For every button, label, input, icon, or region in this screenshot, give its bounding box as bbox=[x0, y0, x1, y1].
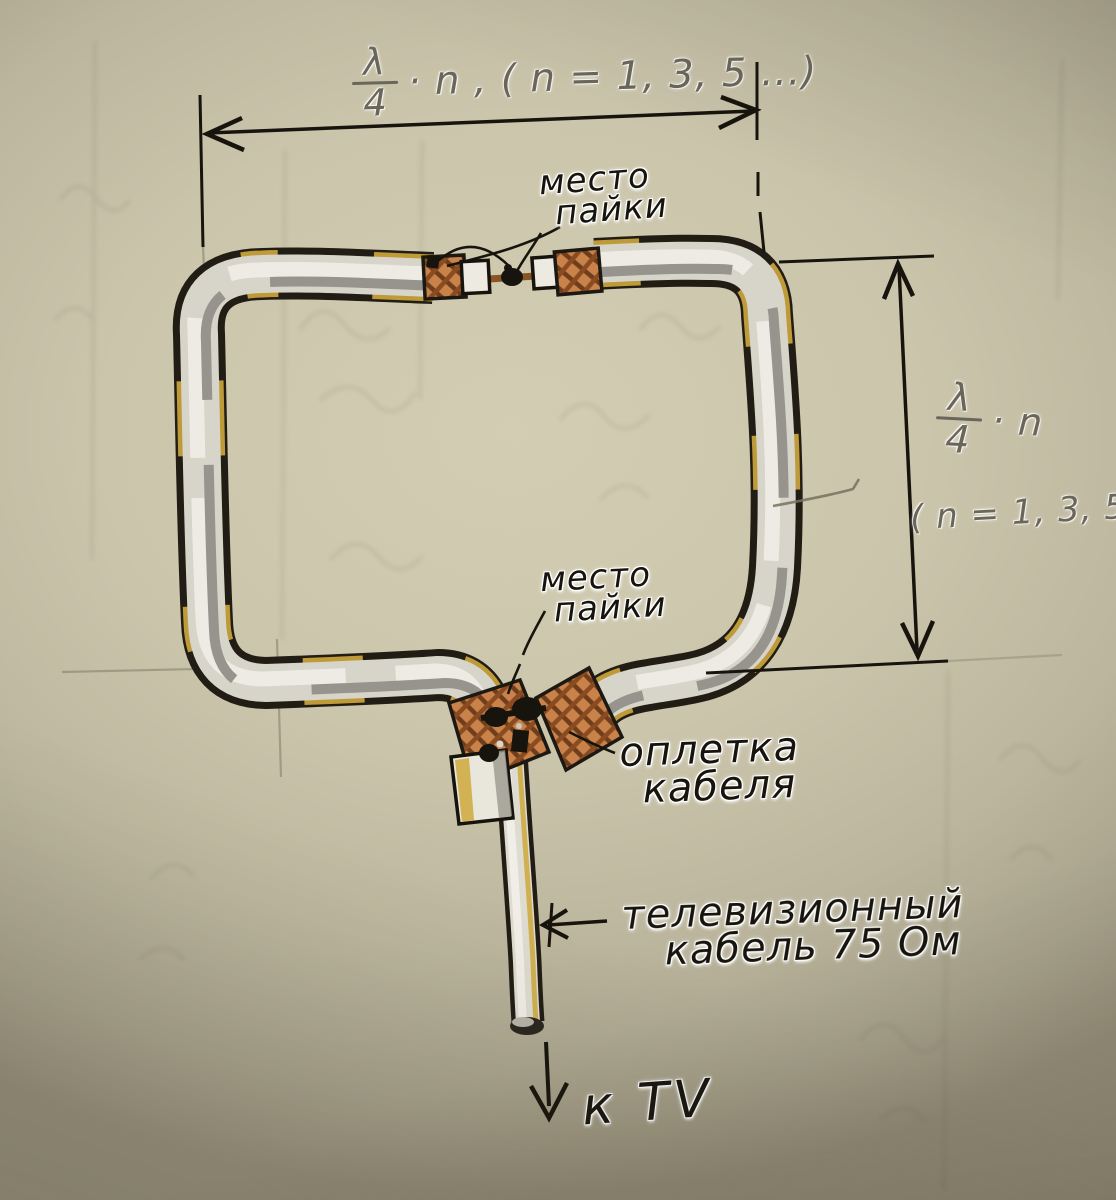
solder-joint-bottom-label: место пайки bbox=[539, 559, 667, 628]
cable-braid-section bbox=[554, 248, 602, 295]
solder-blob bbox=[484, 707, 508, 727]
label-line: пайки bbox=[553, 590, 667, 627]
fraction: λ 4 bbox=[351, 45, 399, 121]
solder-blob bbox=[511, 729, 529, 753]
formula-suffix: · n bbox=[991, 403, 1044, 441]
to-tv-label: к TV bbox=[580, 1075, 714, 1132]
extension-line bbox=[779, 256, 934, 262]
loop-left-half bbox=[195, 269, 500, 729]
right-dimension-formula: λ 4 · n bbox=[934, 379, 1045, 461]
fraction: λ 4 bbox=[934, 379, 984, 458]
arrow-tick bbox=[549, 903, 552, 947]
to-tv-arrow bbox=[531, 1042, 567, 1118]
feed-cable-label: телевизионный кабель 75 Ом bbox=[621, 886, 966, 971]
feed-cable-arrow bbox=[543, 903, 607, 947]
dimension-line bbox=[899, 267, 917, 650]
fraction-numerator: λ bbox=[947, 380, 972, 416]
top-dimension-formula: λ 4 · n , ( n = 1, 3, 5 ...) bbox=[351, 34, 818, 121]
formula-suffix: · n , ( n = 1, 3, 5 ...) bbox=[408, 54, 818, 101]
top-gap-solder-assembly bbox=[423, 247, 602, 299]
fraction-numerator: λ bbox=[363, 45, 387, 80]
solder-blob bbox=[479, 744, 499, 762]
label-line: кабеля bbox=[642, 766, 801, 808]
fraction-denominator: 4 bbox=[363, 86, 388, 121]
cable-braid-label: оплетка кабеля bbox=[619, 729, 801, 809]
solder-joint-top-label: место пайки bbox=[538, 160, 669, 231]
label-line: кабель 75 Ом bbox=[664, 923, 965, 970]
insulation-white bbox=[461, 260, 490, 293]
solder-blob bbox=[501, 268, 523, 286]
label-line: пайки bbox=[554, 191, 669, 230]
paper-sketch-photo: λ 4 · n , ( n = 1, 3, 5 ...) λ 4 · n ( n… bbox=[0, 0, 1116, 1200]
fraction-denominator: 4 bbox=[944, 422, 971, 458]
extension-line bbox=[200, 95, 203, 247]
solder-blob bbox=[512, 697, 542, 721]
